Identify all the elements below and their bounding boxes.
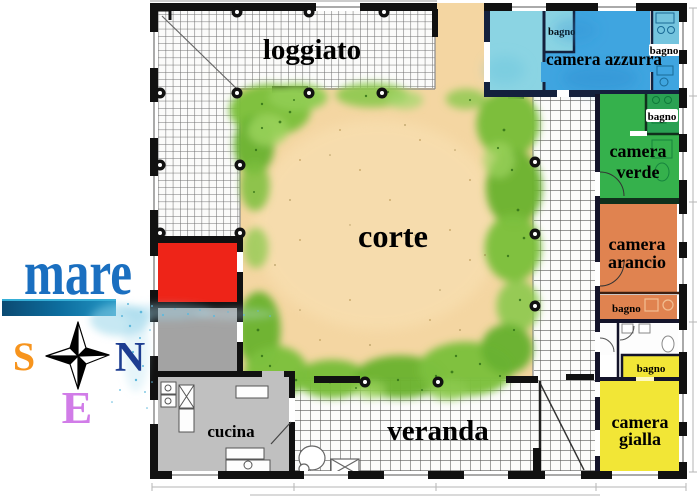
svg-text:camera: camera bbox=[610, 141, 667, 161]
svg-text:gialla: gialla bbox=[619, 429, 661, 449]
svg-text:camera: camera bbox=[609, 234, 666, 254]
svg-text:bagno: bagno bbox=[612, 303, 641, 315]
svg-text:S: S bbox=[13, 334, 35, 379]
svg-text:E: E bbox=[62, 382, 93, 433]
svg-text:bagno: bagno bbox=[637, 363, 666, 375]
svg-text:verde: verde bbox=[617, 162, 660, 182]
svg-text:N: N bbox=[115, 335, 145, 381]
svg-text:veranda: veranda bbox=[387, 415, 489, 447]
svg-text:corte: corte bbox=[358, 218, 428, 254]
svg-text:loggiato: loggiato bbox=[263, 34, 361, 66]
svg-text:bagno: bagno bbox=[648, 111, 677, 123]
svg-text:camera azzurra: camera azzurra bbox=[546, 49, 662, 69]
svg-text:arancio: arancio bbox=[608, 252, 666, 272]
svg-text:mare: mare bbox=[24, 237, 132, 308]
svg-text:cucina: cucina bbox=[207, 422, 255, 441]
